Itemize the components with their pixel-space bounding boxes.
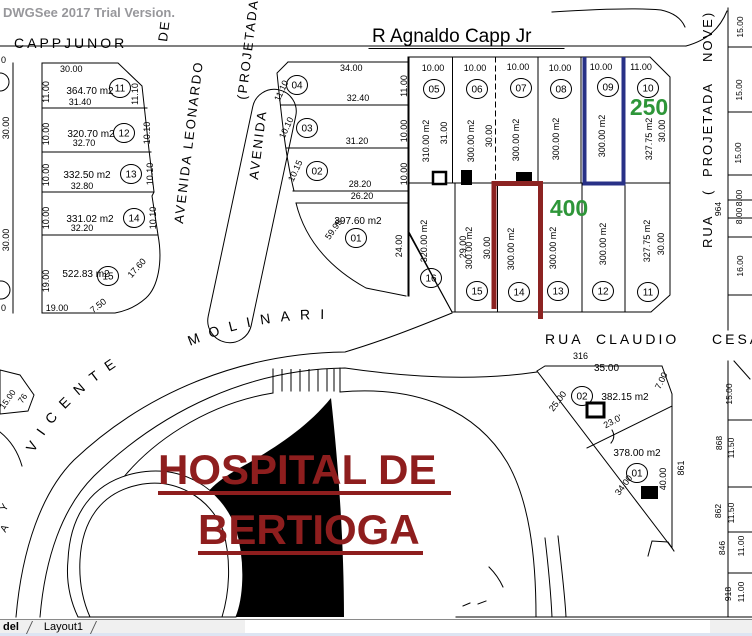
dimension-label: 8.00 — [734, 207, 744, 224]
lot-number: 03 — [301, 124, 313, 135]
street-rua-projetada: RUA — [700, 215, 715, 248]
dimension-label: 15.00 — [734, 79, 744, 101]
dimension-label: 10.00 — [549, 63, 572, 73]
dimension-label: 40.00 — [658, 468, 668, 491]
lot-area-label: 300.00 m2 — [597, 115, 607, 158]
dimension-label: 15.00 — [724, 383, 734, 405]
dimension-label: 10.00 — [590, 62, 613, 72]
lot-number: 13 — [125, 170, 137, 181]
dimension-label: 32.40 — [347, 93, 370, 103]
dimension-label: 15.00 — [735, 16, 745, 38]
street-claudio-label: CLAUDIO — [596, 331, 679, 347]
lot-number: 01 — [350, 234, 362, 245]
lot-area-label: 332.50 m2 — [63, 170, 111, 181]
layout-tab-bar: del Layout1 — [0, 619, 752, 634]
lot-area-label: 300.00 m2 — [548, 227, 558, 270]
street-capp: CAPP — [14, 35, 64, 51]
street-cesar-label: CESA — [712, 331, 752, 347]
parcel-dividers — [281, 105, 408, 203]
dimension-label: 10.15 — [286, 158, 305, 183]
driveway-edges — [273, 368, 340, 393]
street-vicente: VICENTE — [23, 350, 127, 454]
street-line-upper — [552, 9, 685, 27]
dimension-label: 30.00 — [1, 117, 11, 140]
dimension-label: 10.10 — [145, 163, 155, 186]
dimension-label: 0 — [1, 55, 6, 65]
lot-number: 01 — [631, 469, 643, 480]
building-footprint — [587, 403, 604, 417]
dimension-label: 316 — [573, 351, 588, 361]
triangle-block: 316 35.00 382.15 m2 02 25.00 7.00 23.0' … — [537, 351, 686, 548]
street-agnaldo-capp: R Agnaldo Capp Jr — [372, 26, 532, 47]
lot-area-label: 300.00 m2 — [464, 227, 474, 270]
dimension-label: 17.60 — [126, 256, 149, 279]
street-rua-projetada: PROJETADA — [700, 82, 715, 177]
lot-number: 09 — [602, 83, 614, 94]
dimension-label: 31.40 — [69, 97, 92, 107]
lot-number: 12 — [118, 129, 130, 140]
lot-number: 08 — [555, 85, 567, 96]
lot-number: 14 — [128, 214, 140, 225]
lot-area-label: 300.00 m2 — [598, 223, 608, 266]
street-letter: Y — [0, 502, 11, 514]
dimension-label: 31.00 — [439, 122, 449, 145]
dimension-label: 30.00 — [482, 237, 492, 260]
block-a: 30.00 30.00 0 0 30.00 364.70 m2 11 11.00… — [0, 55, 160, 315]
dimension-label: 30.00 — [656, 233, 666, 256]
annotation-400: 400 — [550, 195, 588, 221]
tab-separator — [90, 621, 97, 634]
dimension-label: 26.20 — [351, 191, 374, 201]
lot-number: 02 — [576, 392, 588, 403]
dimension-label: 964 — [713, 202, 723, 216]
tab-bar-spacer — [245, 620, 710, 634]
road-edge-right — [545, 536, 566, 617]
lot-number: 07 — [515, 84, 527, 95]
dimension-label: 846 — [717, 541, 727, 555]
dimension-label: 31.20 — [346, 136, 369, 146]
lot-area-label: 300.00 m2 — [506, 228, 516, 271]
trial-watermark: DWGSee 2017 Trial Version. — [3, 5, 175, 20]
lot-number: 16 — [425, 274, 437, 285]
lot-number: 02 — [311, 167, 323, 178]
street-molinari: MOLINARI — [185, 306, 334, 349]
small-parcel-line — [648, 541, 674, 556]
dimension-label: 11.00 — [736, 535, 746, 556]
dimension-label: 10.00 — [41, 164, 51, 187]
dimension-label: 11.00 — [736, 581, 746, 602]
lot-area-label: 327.75 m2 — [644, 118, 654, 161]
hospital-line2: BERTIOGA — [198, 506, 420, 553]
lot-area-label: 382.15 m2 — [601, 392, 649, 403]
hospital-underline1 — [158, 491, 451, 495]
lot-area-label: 320.00 m2 — [419, 220, 429, 263]
street-vicente-text: VICENTE — [23, 350, 127, 454]
dimension-label: 11.00 — [630, 62, 652, 72]
annotation-250: 250 — [630, 94, 668, 120]
road-marks — [463, 567, 503, 606]
dimension-label: 8.00 — [734, 189, 744, 206]
lot-number: 11 — [115, 84, 126, 95]
tab-model[interactable]: del — [0, 621, 19, 633]
dimension-label: 861 — [676, 460, 686, 475]
dimension-label: 32.20 — [71, 223, 94, 233]
dimension-label: 11.10 — [130, 83, 140, 105]
dimension-label: 32.80 — [71, 181, 94, 191]
lot-number: 04 — [291, 81, 303, 92]
tab-layout1[interactable]: Layout1 — [30, 621, 83, 633]
dimension-label: 10.10 — [142, 122, 152, 145]
street-rua-projetada: ( — [700, 189, 715, 195]
avenida-area: AVENIDA LEONARDO AVENIDA (PROJETADA — [171, 0, 300, 347]
dimension-label: 11.00 — [41, 81, 51, 103]
dimension-label: 30.00 — [60, 64, 83, 74]
dimension-label: 35.00 — [594, 363, 619, 374]
dimension-label: 10.00 — [399, 120, 409, 143]
dimension-label: 7.50 — [88, 296, 108, 315]
dimension-label: 30.00 — [657, 120, 667, 143]
lot-number-circle — [0, 73, 9, 91]
street-projetada: (PROJETADA — [234, 0, 261, 100]
dimension-label: 10.00 — [41, 123, 51, 146]
building-footprint — [516, 172, 532, 181]
lot-number: 15 — [471, 287, 483, 298]
street-claudio: RUA CLAUDIO CESA — [545, 331, 752, 347]
dimension-label: 10.00 — [422, 63, 445, 73]
dimension-label: 24.00 — [394, 235, 404, 258]
lot-number: 10 — [642, 84, 654, 95]
dimension-label: 10.00 — [41, 207, 51, 230]
building-footprint — [461, 170, 472, 185]
lot-area-label: 300.00 m2 — [511, 119, 521, 162]
dimension-label: 25.00 — [547, 389, 569, 413]
dimension-label: 862 — [713, 504, 723, 518]
dimension-label: 11.50 — [726, 502, 736, 523]
dimension-label: 19.00 — [46, 303, 69, 313]
dimension-label: 10.00 — [464, 63, 487, 73]
drawing-canvas[interactable]: CAPP JUNOR R Agnaldo Capp Jr DE AVENIDA … — [0, 0, 752, 619]
building-footprint — [433, 172, 446, 184]
lot-number: 15 — [102, 272, 114, 283]
dwg-viewer-window: CAPP JUNOR R Agnaldo Capp Jr DE AVENIDA … — [0, 0, 752, 636]
dimension-label: 11.00 — [399, 75, 409, 97]
dimension-label: 76 — [16, 391, 30, 405]
dimension-label: 34.00 — [613, 473, 635, 497]
street-avenida-leonardo: AVENIDA LEONARDO — [171, 60, 206, 225]
lot-number: 06 — [471, 85, 483, 96]
dimension-label: 868 — [714, 436, 724, 450]
road-edge-left — [0, 432, 22, 466]
dimension-label: 15.00 — [733, 142, 743, 164]
dimension-label: 11.50 — [726, 437, 736, 458]
street-de: DE — [155, 19, 173, 43]
dimension-label: 11.10 — [272, 79, 290, 103]
lot-area-label: 378.00 m2 — [613, 448, 661, 459]
lot-area-label: 364.70 m2 — [66, 86, 114, 97]
street-rua: RUA — [545, 331, 584, 347]
dimension-label: 10.00 — [507, 62, 530, 72]
lot-area-label: 310.00 m2 — [421, 120, 431, 163]
lot-number: 05 — [428, 85, 440, 96]
lot-area-label: 327.75 m2 — [642, 220, 652, 263]
lot-number: 13 — [552, 287, 564, 298]
dimension-label: 0 — [1, 303, 6, 313]
leader-arc — [611, 430, 614, 443]
lot-number: 14 — [513, 288, 525, 299]
highlight-lot14-red — [492, 184, 544, 320]
dimension-label: 34.00 — [340, 63, 363, 73]
hospital-underline2 — [198, 551, 423, 555]
hospital-block-edge — [340, 391, 536, 617]
street-junor: JUNOR — [64, 35, 127, 51]
lot-number: 11 — [643, 288, 654, 299]
dimension-label: 19.00 — [41, 270, 51, 293]
building-footprint — [641, 486, 658, 499]
lot-number: 12 — [597, 287, 609, 298]
dimension-label: 28.20 — [349, 179, 372, 189]
dimension-label: 30.00 — [484, 125, 494, 148]
dimension-label: 16.00 — [735, 255, 745, 277]
dimension-label: 32.70 — [73, 138, 96, 148]
dimension-label: 918 — [723, 587, 733, 601]
dimension-label: 30.00 — [1, 229, 11, 252]
street-rua-projetada: NOVE) — [700, 11, 715, 62]
dimension-label: 10.10 — [148, 207, 158, 230]
street-molinari-text: MOLINARI — [185, 306, 334, 349]
hospital-line1: HOSPITAL DE — [158, 446, 436, 493]
lot-number-circle — [0, 281, 10, 299]
street-letter: A — [0, 523, 11, 535]
lot-area-label: 300.00 m2 — [466, 120, 476, 163]
dimension-label: 59.95 — [323, 217, 344, 241]
lot-area-label: 300.00 m2 — [551, 118, 561, 161]
dimension-label: 10.00 — [399, 163, 409, 186]
